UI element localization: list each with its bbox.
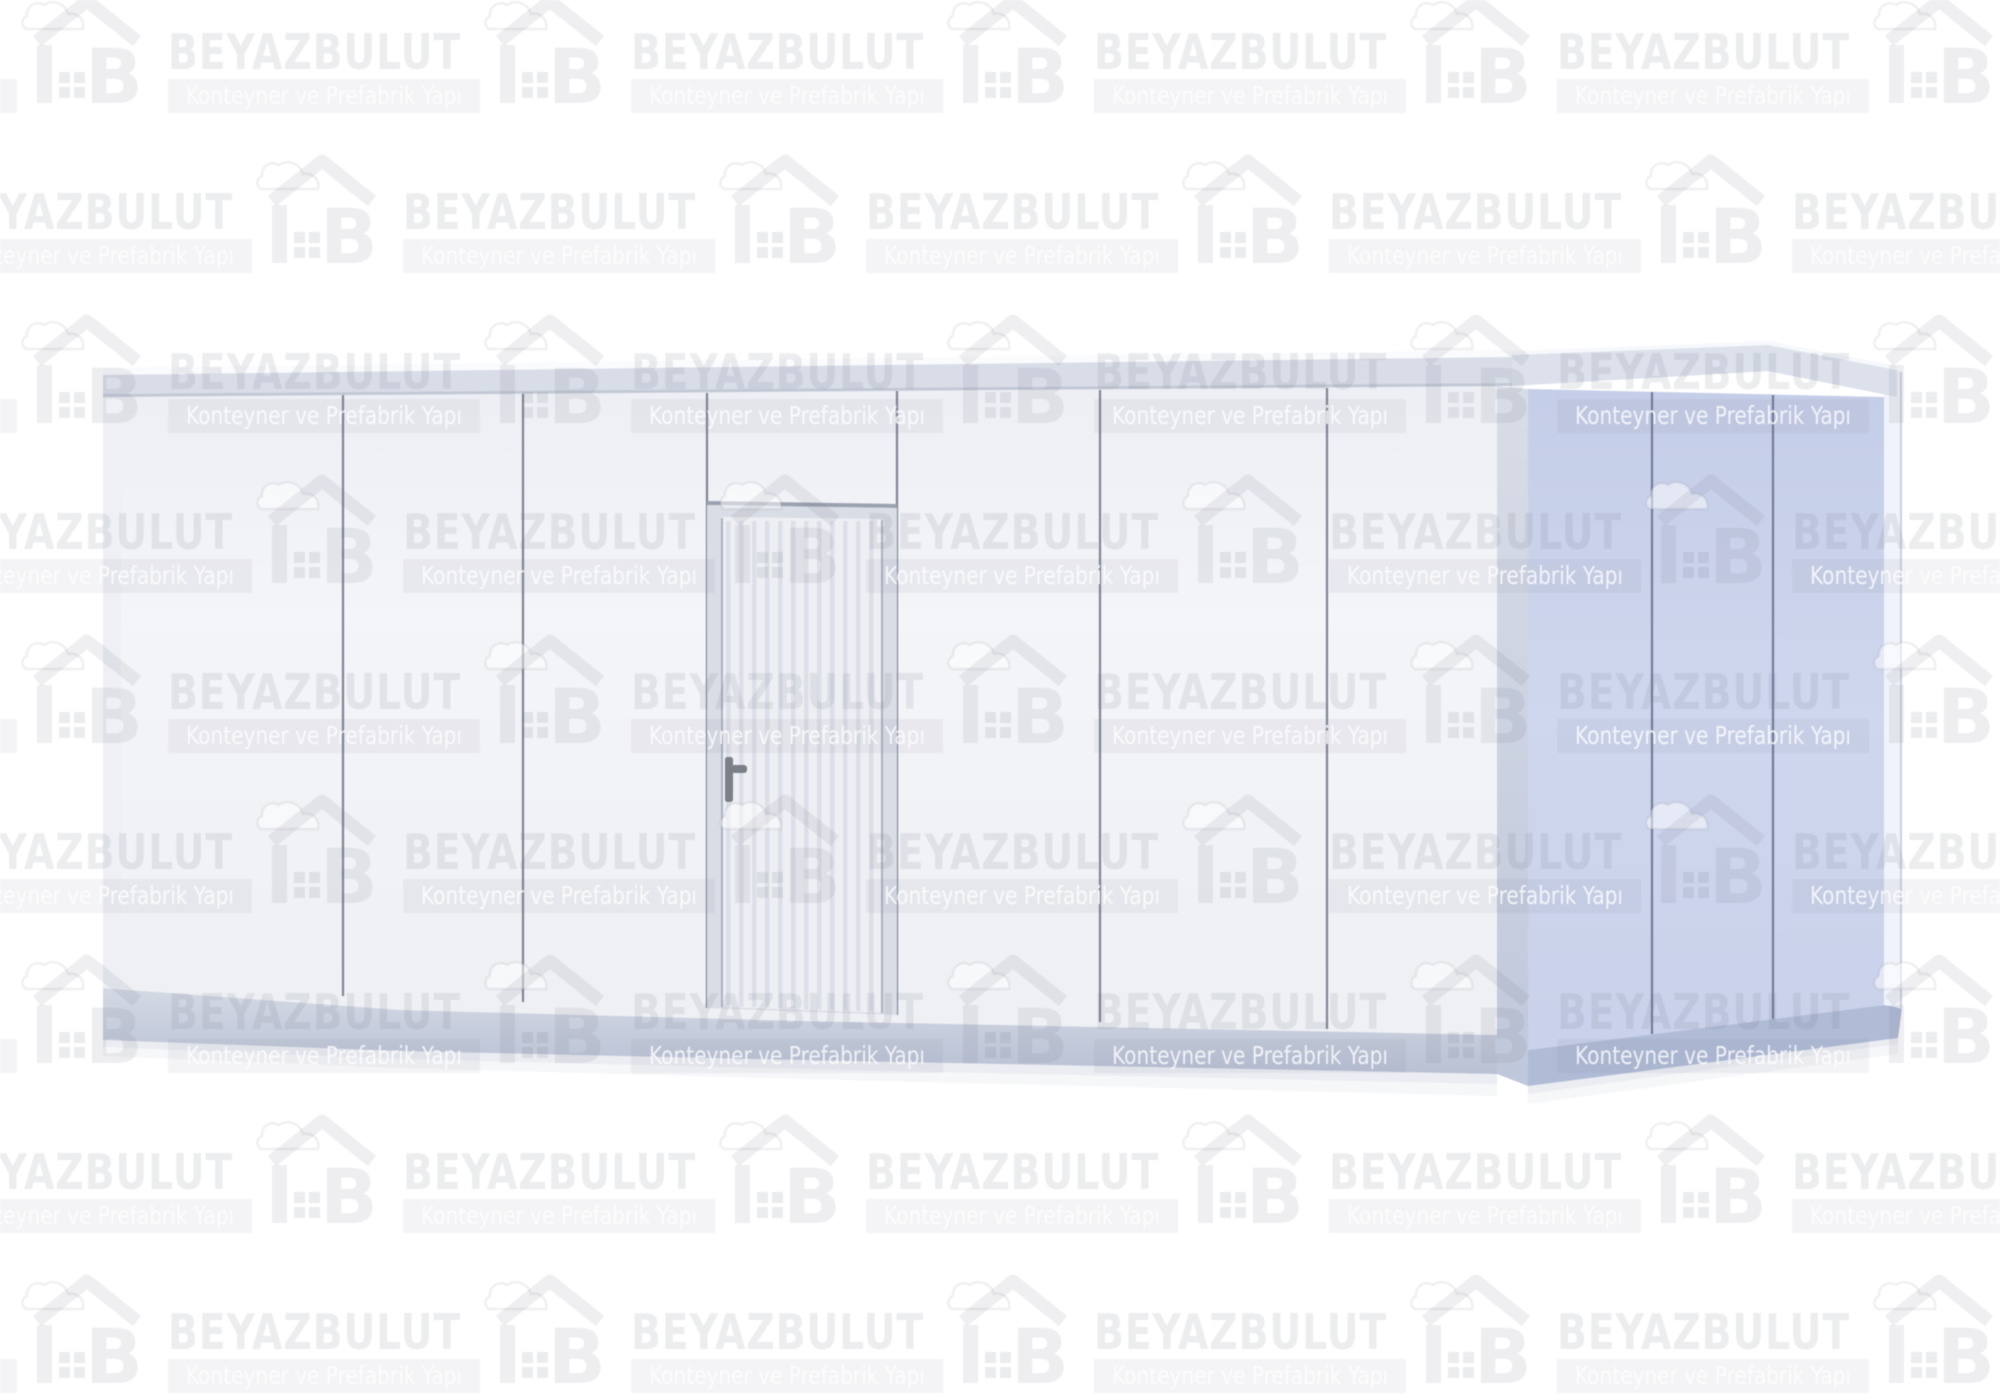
- door-corrugation-stripe: [856, 521, 861, 1011]
- door-corrugation-stripe: [752, 521, 757, 1007]
- door-corrugation-stripe: [843, 521, 848, 1011]
- door-corrugation-stripe: [869, 521, 874, 1011]
- product-photo: B BEYAZBULUT Konteyner ve Prefabrik Yapı: [0, 0, 2000, 1400]
- door-corrugation-stripe: [765, 521, 770, 1008]
- container-product-image: B BEYAZBULUT Konteyner ve Prefabrik Yapı: [0, 0, 2000, 1400]
- door-corrugation-stripe: [739, 521, 744, 1007]
- door-corrugation-stripe: [778, 521, 783, 1008]
